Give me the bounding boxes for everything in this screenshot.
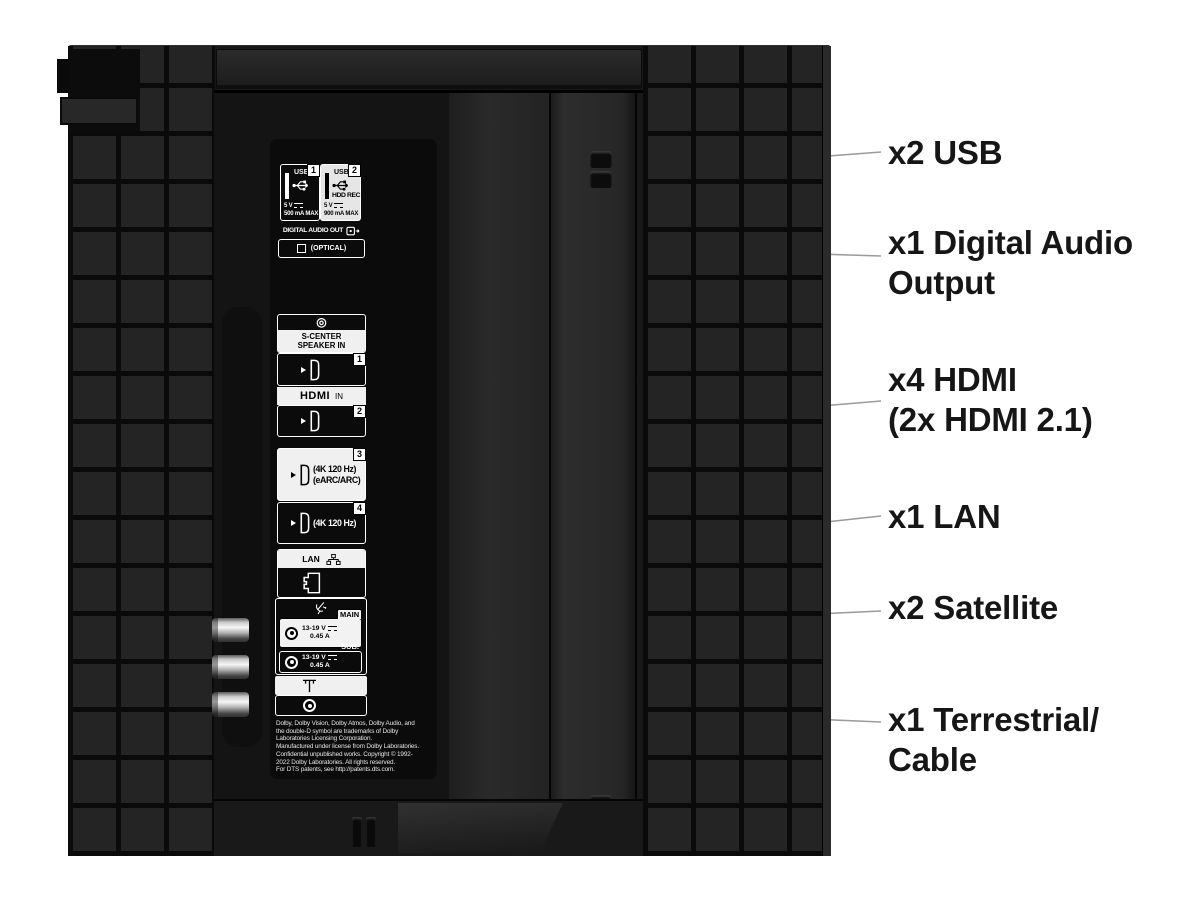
callout-label-terrestrial: x1 Terrestrial/ Cable <box>888 700 1099 780</box>
hdmi-plug-icon <box>299 512 310 534</box>
port-number-badge: 4 <box>353 502 366 515</box>
usb-icon <box>292 179 313 192</box>
hdmi-port-4: 4 (4K 120 Hz) <box>277 502 366 544</box>
tv-texture-left <box>68 46 215 856</box>
callout-label-digital-audio: x1 Digital Audio Output <box>888 223 1133 303</box>
satellite-ports: MAIN 13-19 V 0.45 A SUB. 13-19 V 0.45 A <box>275 598 367 675</box>
hdmi3-spec: (4K 120 Hz) (eARC/ARC) <box>313 464 360 485</box>
coax-icon <box>285 656 298 669</box>
hdmi-in-text: IN <box>335 392 343 401</box>
callout-label-satellite: x2 Satellite <box>888 588 1058 628</box>
port-number-badge: 2 <box>353 405 366 418</box>
callout-label-lan: x1 LAN <box>888 497 1001 537</box>
port-number-badge: 2 <box>348 164 361 177</box>
tv-bottom-strip <box>214 799 643 856</box>
satellite-sub-port: SUB. 13-19 V 0.45 A <box>279 651 362 673</box>
hdmi-logo: HDMI <box>300 390 330 402</box>
arrow-icon <box>291 472 296 478</box>
hdmi-plug-icon <box>309 410 320 432</box>
satellite-sub-spec: 13-19 V 0.45 A <box>302 654 337 670</box>
satellite-main-spec: 13-19 V 0.45 A <box>302 625 337 641</box>
usb-slot-icon <box>285 173 289 199</box>
port-number-badge: 1 <box>307 164 320 177</box>
s-center-speaker-port: ◎ S-CENTER SPEAKER IN <box>277 314 366 353</box>
main-tab: MAIN <box>337 609 362 619</box>
usb-voltage: 5 V <box>324 202 343 209</box>
rj45-icon <box>300 571 324 595</box>
tv-texture-right <box>643 46 831 856</box>
hdmi-port-1: 1 <box>277 353 366 386</box>
dc-symbol-icon <box>328 625 337 632</box>
connector-strip <box>222 307 262 747</box>
network-icon <box>326 554 341 565</box>
tv-top-bar <box>216 49 642 89</box>
tv-center-spine <box>549 93 637 807</box>
arrow-icon <box>301 367 306 373</box>
spdif-out-icon <box>346 226 361 236</box>
lan-port: LAN <box>277 549 366 598</box>
dc-symbol-icon <box>328 654 337 661</box>
usb-icon <box>332 179 353 192</box>
terrestrial-antenna-label <box>275 676 367 695</box>
port-number-badge: 1 <box>353 353 366 366</box>
dc-symbol-icon <box>334 202 343 209</box>
tv-right-edge <box>822 46 831 856</box>
mount-bracket <box>60 97 138 125</box>
terrestrial-port <box>275 695 367 716</box>
optical-port-icon <box>297 244 306 253</box>
callout-label-usb: x2 USB <box>888 133 1002 173</box>
lan-label-strip: LAN <box>278 550 365 568</box>
usb-current: 500 mA MAX <box>284 211 318 217</box>
arrow-icon <box>301 418 306 424</box>
s-center-label: S-CENTER SPEAKER IN <box>278 330 365 352</box>
legal-text: Dolby, Dolby Vision, Dolby Atmos, Dolby … <box>276 720 434 774</box>
hdmi-in-label: HDMI IN <box>277 387 366 405</box>
optical-port: (OPTICAL) <box>278 239 365 258</box>
dc-symbol-icon <box>294 202 303 209</box>
cable-clip-top <box>588 151 614 193</box>
usb-slot-icon <box>325 173 329 199</box>
recess-mid-area <box>449 93 549 799</box>
usb-port-1: 1 USB 5 V 500 mA MAX <box>280 164 320 221</box>
port-label-panel: 1 USB 5 V 500 mA MAX 2 USB <box>270 139 437 779</box>
sub-tab: SUB. <box>341 642 359 651</box>
callout-label-hdmi: x4 HDMI (2x HDMI 2.1) <box>888 360 1093 440</box>
arrow-icon <box>291 520 296 526</box>
usb-voltage: 5 V <box>284 202 303 209</box>
usb-current: 900 mA MAX <box>324 211 358 217</box>
digital-audio-out-title: DIGITAL AUDIO OUT <box>274 224 370 237</box>
coax-icon <box>285 627 298 640</box>
hdmi-plug-icon <box>299 464 310 486</box>
f-connector-1 <box>212 618 249 642</box>
hdd-rec-label: HDD REC <box>332 192 360 199</box>
coax-icon <box>303 699 316 712</box>
tv-rear-ports-diagram: 1 USB 5 V 500 mA MAX 2 USB <box>0 0 1200 900</box>
hdmi-plug-icon <box>309 359 320 381</box>
port-number-badge: 3 <box>353 448 366 461</box>
stand-tabs <box>352 817 376 847</box>
stand-cover <box>398 803 563 853</box>
tv-back-panel: 1 USB 5 V 500 mA MAX 2 USB <box>68 45 831 855</box>
hdmi-port-3: 3 (4K 120 Hz) (eARC/ARC) <box>277 448 366 501</box>
f-connector-3 <box>212 692 249 717</box>
optical-label: (OPTICAL) <box>311 245 346 252</box>
f-connector-2 <box>212 655 249 679</box>
hdmi-port-2: 2 <box>277 405 366 437</box>
hdmi4-spec: (4K 120 Hz) <box>313 518 356 529</box>
satellite-dish-icon <box>312 600 330 616</box>
usb-port-2: 2 USB HDD REC 5 V 900 mA MAX <box>320 164 361 221</box>
minijack-icon: ◎ <box>278 315 365 330</box>
usb-label: USB <box>334 169 349 176</box>
mount-hook <box>57 59 69 93</box>
antenna-icon <box>300 679 319 693</box>
